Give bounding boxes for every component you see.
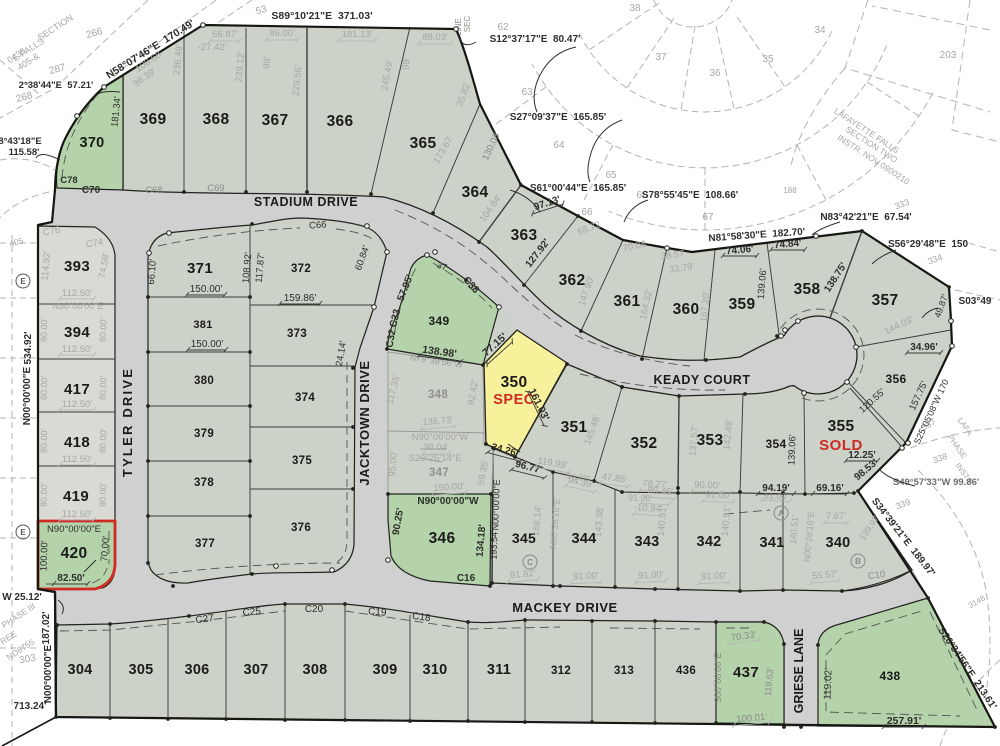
svg-text:34.96': 34.96' xyxy=(910,342,937,353)
svg-text:S78°55'45"E 108.66': S78°55'45"E 108.66' xyxy=(642,190,738,201)
svg-text:342: 342 xyxy=(696,534,721,550)
svg-text:419: 419 xyxy=(63,488,89,505)
svg-text:378: 378 xyxy=(194,477,214,489)
svg-text:66.87': 66.87' xyxy=(212,29,238,40)
svg-text:341: 341 xyxy=(759,535,784,551)
svg-text:313: 313 xyxy=(614,665,634,677)
svg-text:GRIESE LANE: GRIESE LANE xyxy=(792,629,806,714)
svg-text:352: 352 xyxy=(631,435,658,452)
svg-text:91.00': 91.00' xyxy=(764,491,789,502)
svg-text:S56°29'48"E 150: S56°29'48"E 150 xyxy=(888,239,969,250)
svg-text:C78: C78 xyxy=(60,175,77,186)
svg-text:150.00': 150.00' xyxy=(433,481,465,494)
svg-text:349: 349 xyxy=(429,314,450,328)
svg-text:S20°25'14"E: S20°25'14"E xyxy=(408,453,461,464)
svg-text:115.58': 115.58' xyxy=(9,147,40,158)
svg-text:TYLER DRIVE: TYLER DRIVE xyxy=(120,367,135,477)
svg-text:S89°10'21"E 371.03': S89°10'21"E 371.03' xyxy=(271,10,372,22)
svg-text:C70: C70 xyxy=(82,185,101,196)
svg-text:379: 379 xyxy=(194,428,214,440)
svg-text:362: 362 xyxy=(559,272,586,289)
svg-text:S03°49: S03°49 xyxy=(959,296,992,307)
svg-text:91.00': 91.00' xyxy=(638,569,664,581)
svg-text:N90°00'00"E: N90°00'00"E xyxy=(52,301,103,311)
svg-text:C16: C16 xyxy=(457,573,476,584)
svg-text:N00°00'00"E: N00°00'00"E xyxy=(22,366,33,425)
svg-text:80.00': 80.00' xyxy=(98,375,109,400)
svg-text:91.82': 91.82' xyxy=(510,568,537,581)
svg-text:E: E xyxy=(20,277,26,286)
svg-text:713.24': 713.24' xyxy=(14,701,47,712)
svg-text:306: 306 xyxy=(184,662,209,678)
svg-text:351: 351 xyxy=(561,419,588,436)
svg-text:159.86': 159.86' xyxy=(284,293,317,304)
svg-text:62: 62 xyxy=(497,22,509,33)
svg-text:358: 358 xyxy=(794,281,821,298)
svg-text:66: 66 xyxy=(581,207,593,218)
svg-text:371: 371 xyxy=(187,260,213,277)
svg-text:91.00': 91.00' xyxy=(701,570,727,582)
svg-text:181.13': 181.13' xyxy=(342,29,373,40)
svg-text:310: 310 xyxy=(422,662,447,678)
svg-text:357: 357 xyxy=(872,292,899,309)
svg-text:SEC: SEC xyxy=(463,16,472,33)
svg-text:80.00': 80.00' xyxy=(39,317,50,342)
svg-text:374: 374 xyxy=(295,392,315,404)
svg-text:A: A xyxy=(778,509,784,518)
svg-text:S00°00'00"E: S00°00'00"E xyxy=(713,653,723,704)
svg-text:534.92': 534.92' xyxy=(23,332,34,365)
svg-text:312: 312 xyxy=(551,665,571,677)
svg-text:7.67': 7.67' xyxy=(826,511,846,522)
svg-text:363: 363 xyxy=(511,227,538,244)
svg-text:69.16': 69.16' xyxy=(816,483,843,494)
svg-text:JACKTOWN DRIVE: JACKTOWN DRIVE xyxy=(357,360,372,485)
svg-text:80.00': 80.00' xyxy=(98,317,109,342)
svg-text:36: 36 xyxy=(709,68,721,79)
svg-text:188: 188 xyxy=(783,186,797,195)
svg-text:C: C xyxy=(527,558,533,567)
svg-text:38: 38 xyxy=(629,3,641,14)
svg-text:34: 34 xyxy=(814,25,826,36)
svg-text:STADIUM DRIVE: STADIUM DRIVE xyxy=(254,195,358,209)
svg-text:80.00': 80.00' xyxy=(39,482,50,507)
svg-text:64: 64 xyxy=(553,140,565,151)
svg-text:S61°00'44"E 165.85': S61°00'44"E 165.85' xyxy=(530,183,626,194)
svg-text:-27.42': -27.42' xyxy=(198,42,227,53)
svg-text:55.57': 55.57' xyxy=(812,569,839,582)
svg-text:360: 360 xyxy=(673,301,700,318)
svg-text:8°43'18"E: 8°43'18"E xyxy=(0,136,42,147)
svg-text:381: 381 xyxy=(193,319,212,331)
svg-text:307: 307 xyxy=(243,662,268,678)
svg-text:375: 375 xyxy=(292,455,312,467)
svg-text:438: 438 xyxy=(880,669,901,683)
svg-text:365: 365 xyxy=(410,135,437,152)
svg-text:311: 311 xyxy=(487,662,511,678)
svg-text:393: 393 xyxy=(64,258,90,275)
svg-text:N00°00'00"E: N00°00'00"E xyxy=(490,479,502,530)
svg-text:437: 437 xyxy=(733,664,759,681)
svg-text:82.50': 82.50' xyxy=(57,573,84,584)
svg-text:99': 99' xyxy=(400,57,412,70)
svg-text:38.04': 38.04' xyxy=(423,442,449,453)
svg-text:309: 309 xyxy=(372,662,397,678)
svg-text:70.00': 70.00' xyxy=(99,535,112,562)
svg-text:376: 376 xyxy=(291,522,311,534)
svg-text:63: 63 xyxy=(521,87,533,98)
svg-text:95.00': 95.00' xyxy=(387,450,400,477)
svg-text:436: 436 xyxy=(676,665,696,677)
svg-text:150.00': 150.00' xyxy=(191,339,224,350)
svg-text:257.91': 257.91' xyxy=(887,715,922,727)
svg-text:377: 377 xyxy=(195,538,215,550)
svg-text:366: 366 xyxy=(327,113,354,130)
svg-text:65: 65 xyxy=(605,170,617,181)
svg-text:C27: C27 xyxy=(195,613,215,626)
svg-text:380: 380 xyxy=(194,375,214,387)
svg-text:N83°42'21"E 67.54': N83°42'21"E 67.54' xyxy=(820,212,911,223)
svg-text:187.02': 187.02' xyxy=(41,612,52,645)
svg-text:MACKEY DRIVE: MACKEY DRIVE xyxy=(512,600,617,615)
svg-text:346: 346 xyxy=(429,530,456,547)
svg-text:N00°00'00"E: N00°00'00"E xyxy=(43,644,54,703)
svg-text:359: 359 xyxy=(729,296,756,313)
svg-text:99': 99' xyxy=(261,56,273,69)
svg-text:80.00': 80.00' xyxy=(39,375,50,400)
svg-text:112.50': 112.50' xyxy=(62,509,92,520)
svg-text:C69: C69 xyxy=(207,183,224,194)
svg-text:N90°00'00"E: N90°00'00"E xyxy=(47,524,101,535)
svg-text:355: 355 xyxy=(828,418,855,435)
svg-text:N90°00'00"W: N90°00'00"W xyxy=(417,496,479,507)
svg-text:350: 350 xyxy=(501,374,528,391)
svg-text:37: 37 xyxy=(655,52,667,63)
svg-text:C25: C25 xyxy=(242,606,262,619)
svg-text:S27°09'37"E 165.85': S27°09'37"E 165.85' xyxy=(510,112,606,123)
svg-text:100.00': 100.00' xyxy=(38,540,50,571)
svg-text:112.50': 112.50' xyxy=(62,399,92,410)
svg-text:139.06': 139.06' xyxy=(786,434,798,465)
svg-text:67: 67 xyxy=(702,212,714,223)
svg-text:150.00': 150.00' xyxy=(190,284,223,295)
svg-text:370: 370 xyxy=(79,135,104,151)
svg-text:W 25.12': W 25.12' xyxy=(2,592,42,603)
svg-text:C68: C68 xyxy=(145,185,162,196)
svg-text:S12°37'17"E 80.47': S12°37'17"E 80.47' xyxy=(490,34,581,45)
svg-text:112.50': 112.50' xyxy=(62,454,92,465)
svg-text:91.00': 91.00' xyxy=(705,490,731,502)
svg-text:KEADY COURT: KEADY COURT xyxy=(654,373,751,387)
svg-text:308: 308 xyxy=(302,662,327,678)
svg-text:E: E xyxy=(20,528,26,537)
svg-text:91.00': 91.00' xyxy=(573,570,599,582)
svg-text:353: 353 xyxy=(697,432,724,449)
svg-text:80.00': 80.00' xyxy=(39,428,50,453)
svg-text:35: 35 xyxy=(762,54,774,65)
svg-text:B: B xyxy=(855,557,861,566)
svg-text:80.00': 80.00' xyxy=(98,482,109,507)
svg-text:373: 373 xyxy=(287,328,307,340)
svg-text:S49°57'33"W 99.86': S49°57'33"W 99.86' xyxy=(893,477,979,488)
svg-text:C18: C18 xyxy=(412,611,432,624)
svg-text:C66: C66 xyxy=(309,219,327,231)
svg-text:420: 420 xyxy=(61,545,88,562)
svg-text:372: 372 xyxy=(291,263,311,275)
svg-text:C20: C20 xyxy=(305,604,324,615)
svg-text:340: 340 xyxy=(825,535,850,551)
svg-text:88.03': 88.03' xyxy=(422,32,448,43)
svg-text:C19: C19 xyxy=(368,606,388,619)
svg-text:119.02': 119.02' xyxy=(822,668,834,700)
svg-text:304: 304 xyxy=(67,662,92,678)
svg-text:80.00': 80.00' xyxy=(98,428,109,453)
svg-text:305: 305 xyxy=(128,662,153,678)
svg-text:66.10': 66.10' xyxy=(146,258,159,285)
svg-text:417: 417 xyxy=(64,381,90,398)
svg-text:86.00': 86.00' xyxy=(269,28,295,39)
svg-text:364: 364 xyxy=(462,184,489,201)
svg-text:369: 369 xyxy=(140,111,167,128)
svg-text:367: 367 xyxy=(262,112,289,129)
svg-text:361: 361 xyxy=(614,293,641,310)
svg-text:112.50': 112.50' xyxy=(62,344,92,355)
svg-text:112.50': 112.50' xyxy=(62,288,92,299)
svg-text:418: 418 xyxy=(64,434,90,451)
svg-text:354: 354 xyxy=(766,437,787,451)
svg-text:193.54': 193.54' xyxy=(488,530,499,560)
svg-text:203: 203 xyxy=(940,50,957,61)
svg-text:394: 394 xyxy=(64,324,90,341)
svg-text:2°38'44"E 57.21': 2°38'44"E 57.21' xyxy=(19,80,94,91)
svg-text:347: 347 xyxy=(429,467,449,479)
svg-text:368: 368 xyxy=(203,111,230,128)
svg-text:91.00': 91.00' xyxy=(628,492,653,503)
svg-text:348: 348 xyxy=(428,389,448,401)
svg-text:356: 356 xyxy=(886,372,907,386)
